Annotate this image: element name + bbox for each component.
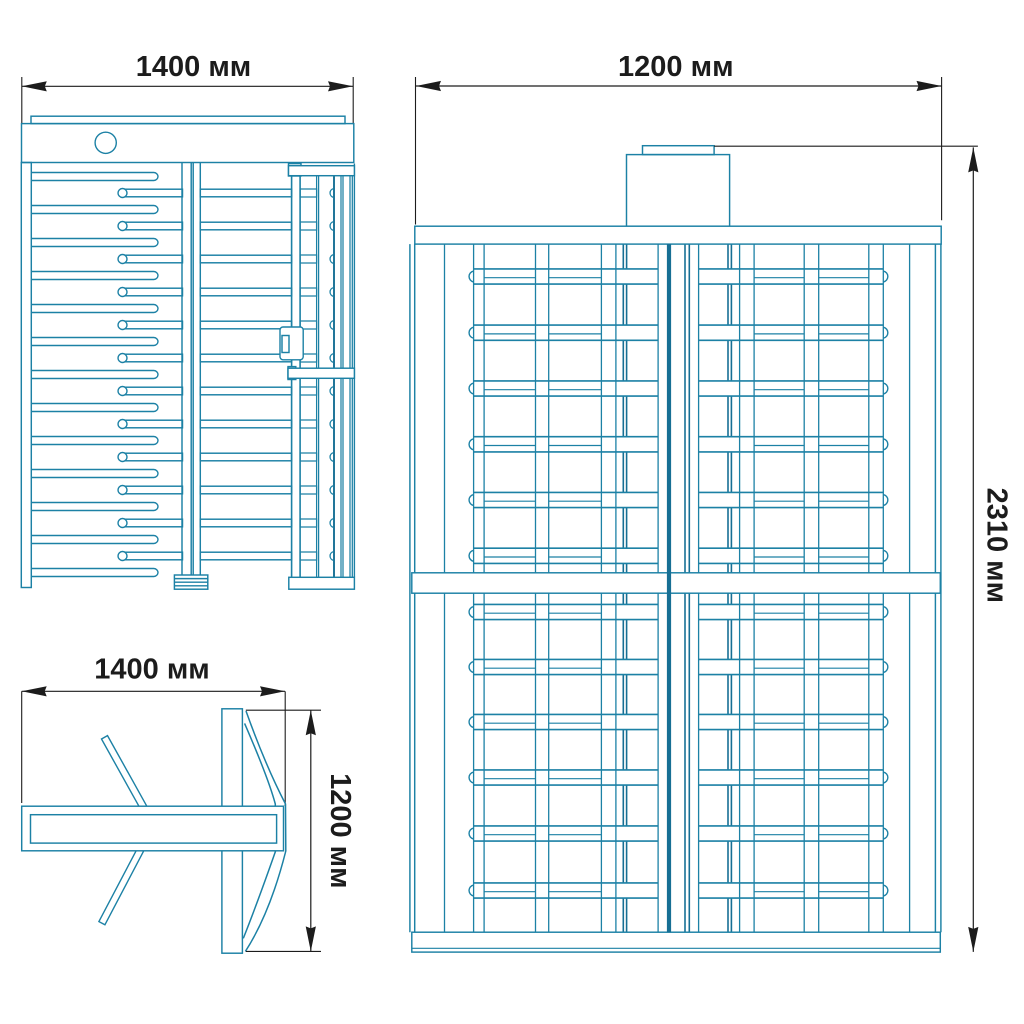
svg-text:2310 мм: 2310 мм [981, 488, 1013, 603]
svg-text:1400 мм: 1400 мм [94, 654, 209, 686]
svg-text:1200 мм: 1200 мм [618, 51, 733, 83]
svg-text:1400 мм: 1400 мм [136, 51, 251, 83]
svg-text:1200 мм: 1200 мм [324, 773, 356, 888]
